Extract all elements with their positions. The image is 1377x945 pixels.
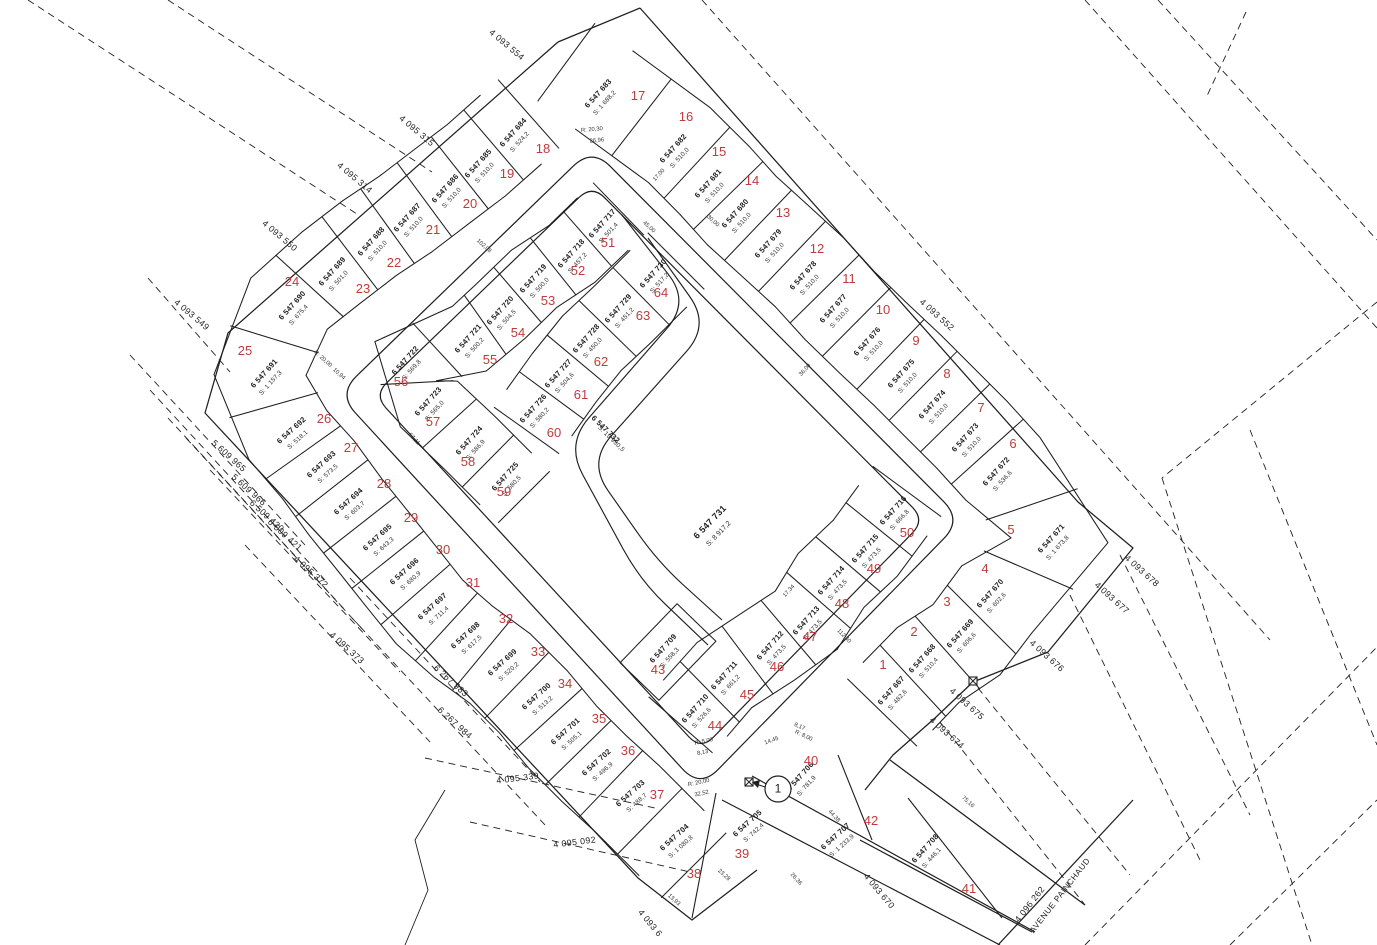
exit-road-edge <box>752 776 1035 932</box>
lot-number: 60 <box>547 425 561 440</box>
terrain-line <box>405 790 445 945</box>
adjacent-boundary-dashed <box>1250 430 1377 745</box>
lot-number: 35 <box>592 711 606 726</box>
adjacent-parcel-label: 4 093 678 <box>1123 553 1161 589</box>
adjacent-parcel-label: 4 095 373 <box>328 630 366 666</box>
lot-number: 52 <box>571 263 585 278</box>
adjacent-boundary-dashed <box>148 278 230 372</box>
dimension-label: 26,96 <box>589 137 604 144</box>
lot-number: 48 <box>835 596 849 611</box>
lot-number: 7 <box>977 400 984 415</box>
dimension-label: 26,36 <box>789 872 803 887</box>
lot-line <box>381 381 454 385</box>
adjacent-parcel-label: 4 093 550 <box>260 218 299 253</box>
lot-number: 30 <box>436 542 450 557</box>
adjacent-parcel-label: 4 093 676 <box>1028 638 1066 674</box>
adjacent-boundary-dashed <box>28 0 360 216</box>
lot-number: 1 <box>879 657 886 672</box>
exit-road-edge <box>722 800 1000 945</box>
lot-number: 11 <box>842 271 856 286</box>
adjacent-parcel-label: 4 093 674 <box>928 715 966 751</box>
adjacent-boundary-dashed <box>1085 0 1377 328</box>
lot-number: 58 <box>461 454 475 469</box>
lot-number: 61 <box>574 387 588 402</box>
lot-number: 62 <box>594 354 608 369</box>
lot-number: 28 <box>377 476 391 491</box>
plat-drawing: 6 547 667S: 482,616 547 668S: 510,426 54… <box>0 0 1377 945</box>
adjacent-parcel-label: 4 095 339 <box>496 770 540 785</box>
lot-number: 18 <box>536 141 550 156</box>
lot-number: 37 <box>650 787 664 802</box>
lot-number: 6 <box>1009 436 1016 451</box>
dimension-label: R: 20,00 <box>313 350 333 369</box>
lot-number: 54 <box>511 325 525 340</box>
lot-number: 29 <box>404 510 418 525</box>
lot-number: 56 <box>394 374 408 389</box>
adjacent-parcel-label: 4 093 677 <box>1093 580 1131 616</box>
lot-number: 5 <box>1007 522 1014 537</box>
adjacent-parcel-label: 4 093 6 <box>636 908 664 939</box>
adjacent-parcel-label: 4 095 372 <box>292 554 330 590</box>
lot-line <box>361 189 415 264</box>
adjacent-boundary-dashed <box>1162 302 1377 478</box>
lot-number: 25 <box>238 343 252 358</box>
lot-line <box>873 466 941 516</box>
dimension-label: 30,00 <box>705 214 720 228</box>
adjacent-parcel-label: 4 093 554 <box>487 27 526 62</box>
dimension-label: 75,16 <box>960 795 975 809</box>
adjacent-boundary-dashed <box>978 688 1130 875</box>
adjacent-parcel-label: 6 509 421 <box>266 517 304 553</box>
lot-number: 16 <box>679 109 693 124</box>
lot-number: 31 <box>466 575 480 590</box>
lot-number: 55 <box>483 352 497 367</box>
lot-number: 47 <box>803 629 817 644</box>
adjacent-parcel-label: 4 095 092 <box>553 834 597 849</box>
dimension-label: 32,52 <box>694 790 709 799</box>
lot-number: 57 <box>426 414 440 429</box>
center-parcel-id: 6 547 731 <box>691 503 728 541</box>
adjacent-parcel-label: 4 093 670 <box>862 871 897 910</box>
adjacent-boundary-dashed <box>168 0 432 172</box>
adjacent-boundary-dashed <box>1120 555 1250 815</box>
lot-number: 27 <box>344 440 358 455</box>
subdivision-boundary <box>558 8 640 42</box>
lot-number: 22 <box>387 255 401 270</box>
lot-number: 50 <box>900 525 914 540</box>
lot-number: 24 <box>285 274 299 289</box>
lot-number: 23 <box>356 281 370 296</box>
adjacent-boundary-dashed <box>470 822 690 872</box>
lot-number: 53 <box>541 293 555 308</box>
lot-number: 38 <box>687 866 701 881</box>
lot-number: 44 <box>708 718 722 733</box>
lot-number: 36 <box>621 743 635 758</box>
lot-number: 20 <box>463 196 477 211</box>
dimension-label: 10,94 <box>331 367 346 382</box>
lot-number: 51 <box>601 235 615 250</box>
adjacent-boundary-dashed <box>1158 0 1377 240</box>
adjacent-boundary-dashed <box>1085 647 1377 945</box>
adjacent-boundary-dashed <box>1206 12 1246 98</box>
lot-number: 33 <box>531 644 545 659</box>
lot-number: 42 <box>864 813 878 828</box>
lot-number: 64 <box>654 285 668 300</box>
adjacent-parcel-label: 4 095 315 <box>397 113 436 148</box>
adjacent-parcel-label: 4 093 549 <box>172 297 211 332</box>
lot-number: 3 <box>943 594 950 609</box>
lot-number: 21 <box>426 222 440 237</box>
lot-number: 32 <box>499 611 513 626</box>
dimension-label: 23,28 <box>716 868 731 882</box>
lot-line <box>847 679 917 746</box>
adjacent-boundary-dashed <box>1070 595 1200 860</box>
dimension-label: 45,00 <box>641 220 656 234</box>
dimension-label: R: 20,30 <box>581 126 603 134</box>
dimension-label: 14,45 <box>764 736 780 747</box>
lot-number: 26 <box>317 411 331 426</box>
lot-number: 46 <box>770 659 784 674</box>
lot-number: 17 <box>631 88 645 103</box>
adjacent-parcel-label: 6 267 984 <box>436 705 474 741</box>
lot-number: 34 <box>558 676 572 691</box>
adjacent-boundary-dashed <box>1162 478 1312 945</box>
lot-number: 9 <box>912 333 919 348</box>
lot-number: 59 <box>497 484 511 499</box>
lot-strip-edge <box>633 51 1108 731</box>
lot-number: 15 <box>712 144 726 159</box>
lot-line <box>229 393 318 418</box>
lot-number: 10 <box>876 302 890 317</box>
lot-number: 19 <box>500 166 514 181</box>
lot-line <box>538 23 595 101</box>
detail-callout-label: 1 <box>775 782 782 796</box>
lot-number: 49 <box>867 561 881 576</box>
lot-number: 45 <box>740 687 754 702</box>
dimension-label: 8,13 <box>697 749 709 757</box>
lot-line <box>620 604 716 700</box>
cadastral-map: 6 547 667S: 482,616 547 668S: 510,426 54… <box>0 0 1377 945</box>
lot-number: 12 <box>810 241 824 256</box>
lot-number: 39 <box>735 846 749 861</box>
dimension-label: 67,11 <box>407 432 421 446</box>
lot-number: 43 <box>651 662 665 677</box>
lot-number: 41 <box>962 881 976 896</box>
adjacent-boundary-dashed <box>1230 800 1377 945</box>
lot-number: 8 <box>943 366 950 381</box>
lot-number: 4 <box>981 561 988 576</box>
dimension-label: 17,34 <box>782 583 797 598</box>
dimension-label: 17,00 <box>652 168 666 183</box>
lot-number: 40 <box>804 753 818 768</box>
lot-number: 2 <box>910 624 917 639</box>
lot-number: 14 <box>745 173 759 188</box>
lot-number: 63 <box>636 308 650 323</box>
lot-line <box>986 489 1078 520</box>
lot-number: 13 <box>776 205 790 220</box>
lot-strip-edge <box>727 536 927 737</box>
dimension-label: 36,00 <box>798 363 812 378</box>
adjacent-parcel-label: 4 095 314 <box>335 160 374 195</box>
dimension-label: R: 20,00 <box>687 778 710 788</box>
adjacent-parcel-label: 6 267 983 <box>432 663 470 699</box>
